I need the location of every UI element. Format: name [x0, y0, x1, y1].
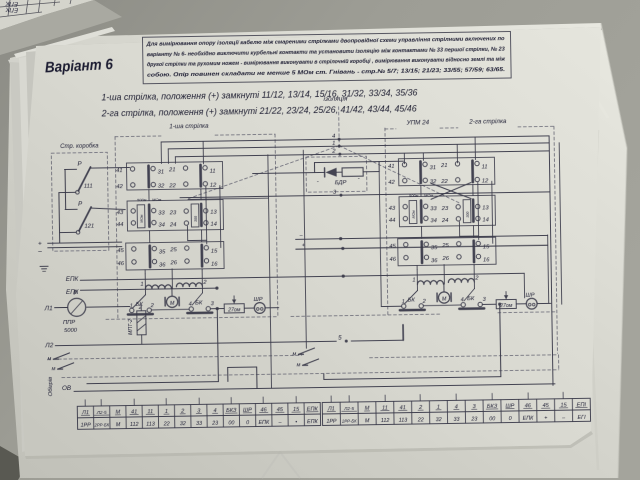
svg-text:31: 31	[158, 169, 165, 175]
svg-text:22: 22	[440, 179, 448, 185]
svg-text:26: 26	[170, 260, 178, 266]
svg-text:1: 1	[130, 303, 133, 309]
svg-text:32: 32	[158, 183, 165, 189]
svg-text:23: 23	[470, 416, 477, 422]
svg-text:11: 11	[210, 169, 216, 175]
svg-text:+: +	[38, 240, 42, 247]
svg-text:46: 46	[390, 257, 397, 263]
svg-text:1: 1	[140, 282, 143, 288]
svg-text:26: 26	[442, 256, 450, 262]
svg-text:14: 14	[210, 222, 217, 228]
svg-text:ППР: ППР	[63, 320, 75, 326]
svg-text:45: 45	[117, 248, 124, 254]
svg-text:22: 22	[168, 183, 176, 189]
svg-text:33: 33	[453, 417, 459, 423]
svg-text:45: 45	[389, 244, 396, 250]
svg-text:32: 32	[436, 417, 442, 423]
svg-text:-: -	[317, 179, 319, 185]
svg-text:УПМ 24: УПМ 24	[406, 119, 430, 126]
svg-text:ШР: ШР	[254, 297, 263, 303]
svg-text:46: 46	[118, 261, 125, 267]
svg-text:1РР: 1РР	[81, 422, 92, 428]
svg-text:1РР: 1РР	[326, 419, 337, 425]
svg-text:11: 11	[482, 164, 488, 170]
svg-text:111: 111	[84, 184, 93, 190]
svg-text:1: 1	[332, 141, 335, 147]
svg-text:31: 31	[430, 165, 437, 171]
svg-text:27ом: 27ом	[499, 303, 513, 309]
svg-text:0: 0	[509, 416, 512, 422]
svg-text:+: +	[544, 415, 547, 421]
svg-text:36: 36	[159, 262, 166, 268]
svg-text:12: 12	[482, 178, 489, 184]
svg-text:43: 43	[389, 206, 396, 212]
svg-text:МОм: МОм	[140, 214, 144, 223]
svg-text:112: 112	[130, 422, 139, 428]
svg-text:121: 121	[84, 224, 94, 230]
svg-text:13: 13	[482, 205, 489, 211]
svg-text:М: М	[116, 422, 121, 428]
svg-text:Обігрів: Обігрів	[48, 377, 54, 397]
svg-text:25: 25	[169, 247, 177, 253]
svg-text:13: 13	[210, 210, 217, 216]
svg-text:16: 16	[211, 262, 218, 268]
svg-text:Стр. коробка: Стр. коробка	[60, 143, 99, 150]
svg-text:МОм: МОм	[152, 197, 162, 202]
svg-text:12: 12	[210, 183, 217, 189]
svg-text:14: 14	[482, 217, 489, 223]
svg-text:Л2-5: Л2-5	[96, 410, 107, 415]
svg-text:00: 00	[228, 420, 234, 426]
svg-text:36: 36	[431, 258, 438, 264]
svg-text:ізоляція: ізоляція	[323, 95, 348, 103]
svg-text:1-ша стрілка: 1-ша стрілка	[169, 122, 209, 131]
svg-text:15: 15	[211, 249, 218, 255]
svg-text:2-га стрілка: 2-га стрілка	[468, 117, 507, 126]
svg-text:113: 113	[399, 417, 408, 423]
svg-text:41: 41	[116, 168, 123, 174]
svg-text:БДР: БДР	[335, 180, 347, 186]
svg-text:2РР-БК: 2РР-БК	[94, 422, 110, 427]
svg-text:27ом: 27ом	[227, 307, 241, 313]
svg-text:ЕПК: ЕПК	[523, 415, 535, 421]
svg-text:ШР: ШР	[526, 293, 535, 299]
svg-text:Варіант 6: Варіант 6	[44, 56, 113, 76]
svg-text:ЕПК: ЕПК	[307, 419, 319, 425]
svg-text:М: М	[442, 296, 447, 302]
svg-text:32: 32	[180, 421, 186, 427]
svg-text:БК: БК	[408, 298, 416, 304]
svg-text:15: 15	[483, 244, 490, 250]
svg-text:м: м	[52, 366, 56, 372]
svg-text:25: 25	[441, 243, 449, 249]
svg-text:300: 300	[194, 216, 198, 222]
svg-text:М: М	[170, 301, 175, 307]
svg-text:23: 23	[211, 420, 218, 426]
svg-text:33: 33	[196, 421, 202, 427]
svg-text:МПТ-2: МПТ-2	[128, 319, 134, 335]
svg-text:43: 43	[117, 210, 124, 216]
svg-text:112: 112	[381, 418, 390, 424]
svg-text:4: 4	[461, 297, 464, 303]
svg-text:ОВ: ОВ	[62, 385, 71, 392]
svg-text:24: 24	[441, 218, 449, 224]
svg-text:41: 41	[388, 164, 395, 170]
svg-text:МОм: МОм	[412, 210, 416, 219]
svg-text:23: 23	[441, 206, 449, 212]
svg-text:м: м	[297, 362, 301, 368]
svg-text:1: 1	[412, 278, 415, 284]
svg-text:33: 33	[430, 206, 437, 212]
svg-text:44: 44	[117, 222, 124, 228]
svg-text:4: 4	[332, 134, 335, 140]
svg-text:300: 300	[466, 212, 470, 218]
svg-text:22: 22	[163, 421, 170, 427]
svg-text:34: 34	[430, 218, 437, 224]
svg-text:35: 35	[159, 249, 166, 255]
svg-text:М: М	[365, 418, 370, 424]
svg-text:Л1: Л1	[44, 305, 54, 312]
svg-text:34: 34	[158, 222, 165, 228]
svg-text:23: 23	[169, 210, 177, 216]
svg-text:4: 4	[189, 302, 192, 308]
svg-text:5000: 5000	[64, 328, 78, 334]
svg-text:-: -	[358, 176, 360, 182]
svg-text:00: 00	[489, 416, 495, 422]
svg-text:•: •	[295, 419, 297, 425]
svg-text:35: 35	[431, 245, 438, 251]
svg-text:22: 22	[417, 417, 424, 423]
svg-text:21: 21	[440, 163, 448, 169]
svg-text:42: 42	[116, 184, 123, 190]
svg-text:33: 33	[158, 210, 165, 216]
svg-text:500м: 500м	[137, 197, 147, 202]
svg-text:21: 21	[168, 167, 176, 173]
svg-text:БК: БК	[467, 296, 475, 302]
svg-text:м: м	[292, 351, 296, 357]
svg-text:м: м	[47, 356, 51, 362]
svg-text:БК: БК	[195, 300, 203, 306]
svg-text:ЕПК: ЕПК	[66, 276, 79, 283]
svg-text:Л2-5: Л2-5	[343, 406, 354, 411]
svg-text:ЕПК: ЕПК	[5, 6, 18, 14]
svg-text:24: 24	[169, 222, 177, 228]
svg-text:44: 44	[389, 218, 396, 224]
svg-text:–: –	[37, 248, 42, 255]
svg-text:0: 0	[246, 420, 249, 426]
svg-text:16: 16	[483, 257, 490, 263]
svg-text:1: 1	[402, 299, 405, 305]
svg-text:ЕПК: ЕПК	[258, 420, 270, 426]
svg-text:42: 42	[388, 180, 395, 186]
svg-text:ЕГІ: ЕГІ	[578, 415, 587, 421]
svg-text:Л2: Л2	[44, 342, 54, 349]
svg-text:113: 113	[146, 421, 155, 427]
svg-text:2РР-БК: 2РР-БК	[341, 418, 357, 423]
